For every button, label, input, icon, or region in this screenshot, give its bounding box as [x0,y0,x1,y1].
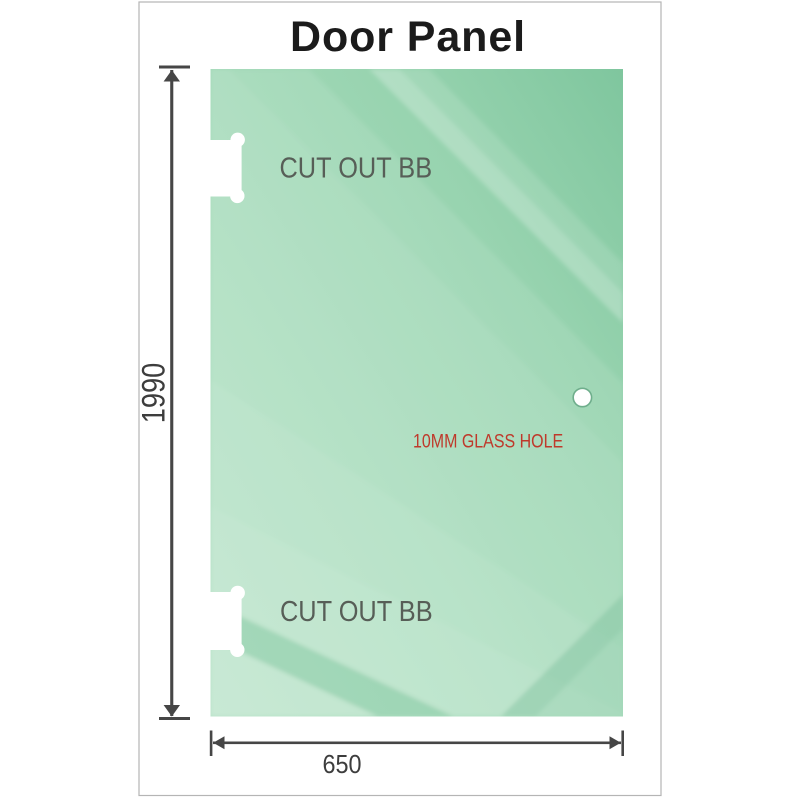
svg-text:CUT OUT BB: CUT OUT BB [280,596,433,628]
svg-text:CUT OUT BB: CUT OUT BB [280,152,433,184]
svg-text:10MM GLASS HOLE: 10MM GLASS HOLE [413,430,563,452]
svg-text:Door Panel: Door Panel [290,13,526,61]
svg-text:650: 650 [322,751,361,779]
svg-text:1990: 1990 [136,363,172,423]
